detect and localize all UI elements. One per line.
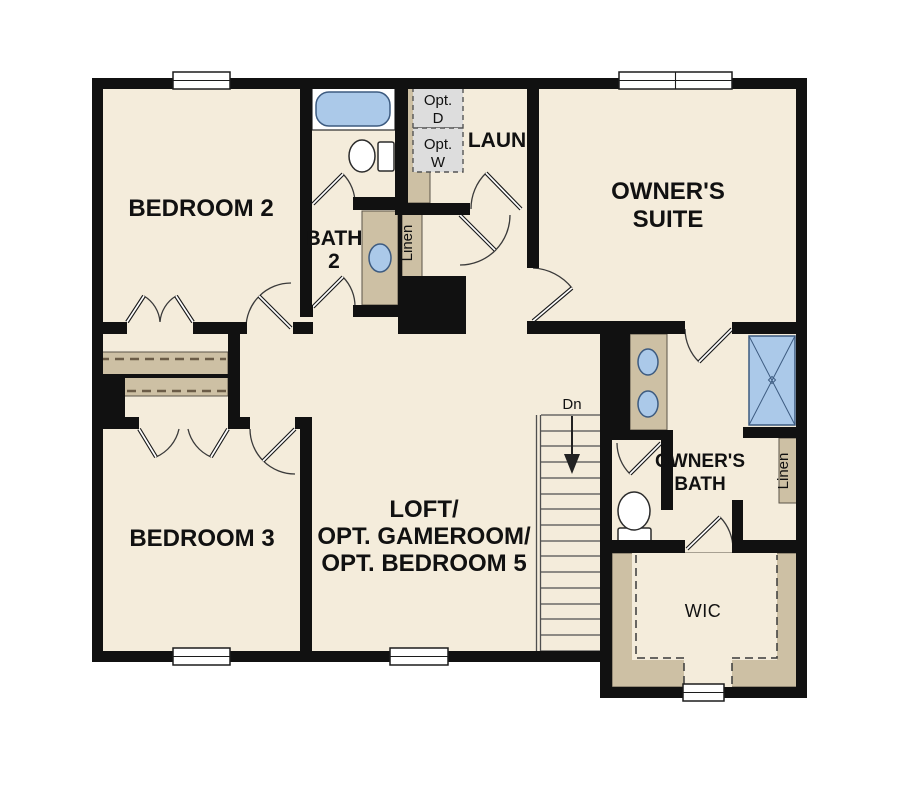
label-opt-dryer-line2: D bbox=[433, 110, 444, 127]
bedroom3-closet-shelf bbox=[124, 377, 228, 396]
label-bath2-line2: 2 bbox=[328, 250, 340, 273]
bath2-toilet-bowl bbox=[349, 140, 375, 172]
label-wic: WIC bbox=[685, 601, 722, 621]
window-wic bbox=[683, 684, 724, 701]
label-owners-suite-line2: SUITE bbox=[633, 206, 704, 233]
bath2-toilet-tank bbox=[378, 142, 394, 171]
label-stairs-down: Dn bbox=[562, 396, 581, 413]
bedroom2-closet-shelf bbox=[97, 352, 228, 375]
owners-sink-2 bbox=[638, 391, 658, 417]
label-owners-bath-line2: BATH bbox=[674, 474, 725, 495]
floor-plan-canvas: BEDROOM 2 BATH 2 LAUN Opt. D Opt. W OWNE… bbox=[0, 0, 897, 796]
label-owners-bath-line1: OWNER'S bbox=[655, 451, 745, 472]
label-owners-linen: Linen bbox=[775, 453, 792, 490]
window-owners-suite bbox=[619, 72, 732, 89]
label-opt-washer-line2: W bbox=[431, 154, 446, 171]
window-loft bbox=[390, 648, 448, 665]
label-loft-line2: OPT. GAMEROOM/ bbox=[317, 523, 531, 550]
label-hall-linen: Linen bbox=[399, 225, 416, 262]
window-bedroom3 bbox=[173, 648, 230, 665]
label-opt-washer-line1: Opt. bbox=[424, 136, 452, 153]
label-loft-line1: LOFT/ bbox=[389, 496, 459, 523]
label-opt-dryer-line1: Opt. bbox=[424, 92, 452, 109]
label-loft-line3: OPT. BEDROOM 5 bbox=[321, 550, 526, 577]
label-bedroom3: BEDROOM 3 bbox=[129, 525, 274, 552]
bathtub bbox=[316, 92, 390, 126]
owners-toilet-bowl bbox=[618, 492, 650, 530]
owners-sink-1 bbox=[638, 349, 658, 375]
bath2-sink bbox=[369, 244, 391, 272]
floor-plan: BEDROOM 2 BATH 2 LAUN Opt. D Opt. W OWNE… bbox=[0, 0, 897, 796]
window-bedroom2 bbox=[173, 72, 230, 89]
label-bath2-line1: BATH bbox=[306, 227, 363, 250]
label-laundry: LAUN bbox=[468, 129, 526, 152]
wic-window-bay bbox=[684, 658, 732, 687]
label-bedroom2: BEDROOM 2 bbox=[128, 195, 273, 222]
label-owners-suite-line1: OWNER'S bbox=[611, 178, 725, 205]
